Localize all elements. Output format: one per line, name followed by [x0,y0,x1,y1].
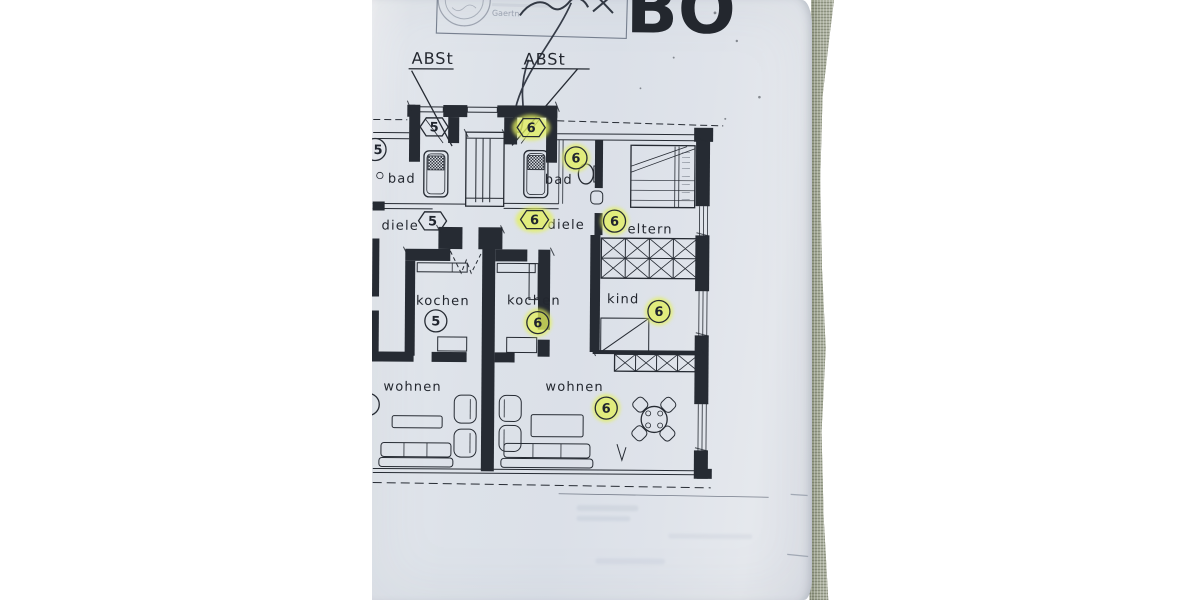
wardrobe-icon [601,238,697,279]
unit-badge-highlighted: 6 [515,206,553,232]
room-label-kind: kind [607,292,640,307]
floorplan-paper: Gaertn BO ABSt ABSt [372,0,812,600]
balcony-dashed-line [373,482,711,487]
unit-badge: 5 [372,138,386,160]
signature-icon [520,0,614,18]
unit-badge: 5 [425,310,447,332]
bleed-through-text [576,505,752,565]
unit-badge-highlighted: 6 [524,309,552,337]
room-label-wohnen-left: wohnen [383,380,442,395]
room-label-wohnen-right: wohnen [545,380,604,395]
abst-label-left: ABSt [412,49,454,68]
door-swing-icon [450,251,482,273]
sofa-set-icon [499,395,594,468]
svg-text:5: 5 [430,120,439,135]
sofa-set-icon [379,395,477,468]
sink-icon [591,191,603,204]
svg-text:6: 6 [602,402,611,417]
svg-text:6: 6 [610,215,619,230]
cut-text-fragment [377,172,383,178]
plan-letters: BO [626,0,736,50]
margin-ticks [787,494,808,556]
unit-badge-highlighted: 6 [512,114,550,140]
window-icon [695,291,709,336]
room-labels: bad bad diele diele eltern kochen kochen… [375,171,673,396]
unit-badge: 5 [418,212,446,230]
room-label-bad-left: bad [388,172,416,187]
room-label-eltern: eltern [627,222,672,237]
unit-badge-highlighted: 6 [645,297,673,325]
photo-canvas: Gaertn BO ABSt ABSt [0,0,1200,600]
window-icon [695,206,709,236]
ruler-line [559,494,769,497]
room-label-diele-left: diele [381,219,419,234]
room-label-kochen-right: kochen [507,293,561,308]
svg-text:6: 6 [571,151,580,166]
bed-icon [631,145,695,207]
svg-text:5: 5 [428,214,437,229]
svg-text:5: 5 [431,314,440,329]
svg-text:6: 6 [533,316,542,331]
room-label-kochen-left: kochen [416,294,470,309]
desk-icon [601,318,649,352]
check-mark [617,444,626,460]
unit-badge-highlighted: 6 [592,394,620,422]
abst-label-right: ABSt [524,50,566,69]
badge-partial-wohnen-left [372,393,379,415]
svg-text:5: 5 [373,143,382,158]
svg-text:6: 6 [654,305,663,320]
svg-text:6: 6 [527,121,536,136]
floorplan-photo: Gaertn BO ABSt ABSt [372,0,834,600]
unit-badge-highlighted: 6 [600,207,628,235]
floorplan-drawing: Gaertn BO ABSt ABSt [372,0,812,600]
window-icon [694,404,708,451]
unit-badge: 5 [420,118,448,136]
unit-badge-highlighted: 6 [562,144,590,172]
room-label-bad-right: bad [545,173,573,188]
window-icon [467,107,497,112]
wardrobe-icon [615,354,699,372]
bathtub-icon [424,151,448,197]
svg-text:6: 6 [530,213,539,228]
dining-table-icon [617,395,678,460]
stamp-text: Gaertn [492,9,520,19]
